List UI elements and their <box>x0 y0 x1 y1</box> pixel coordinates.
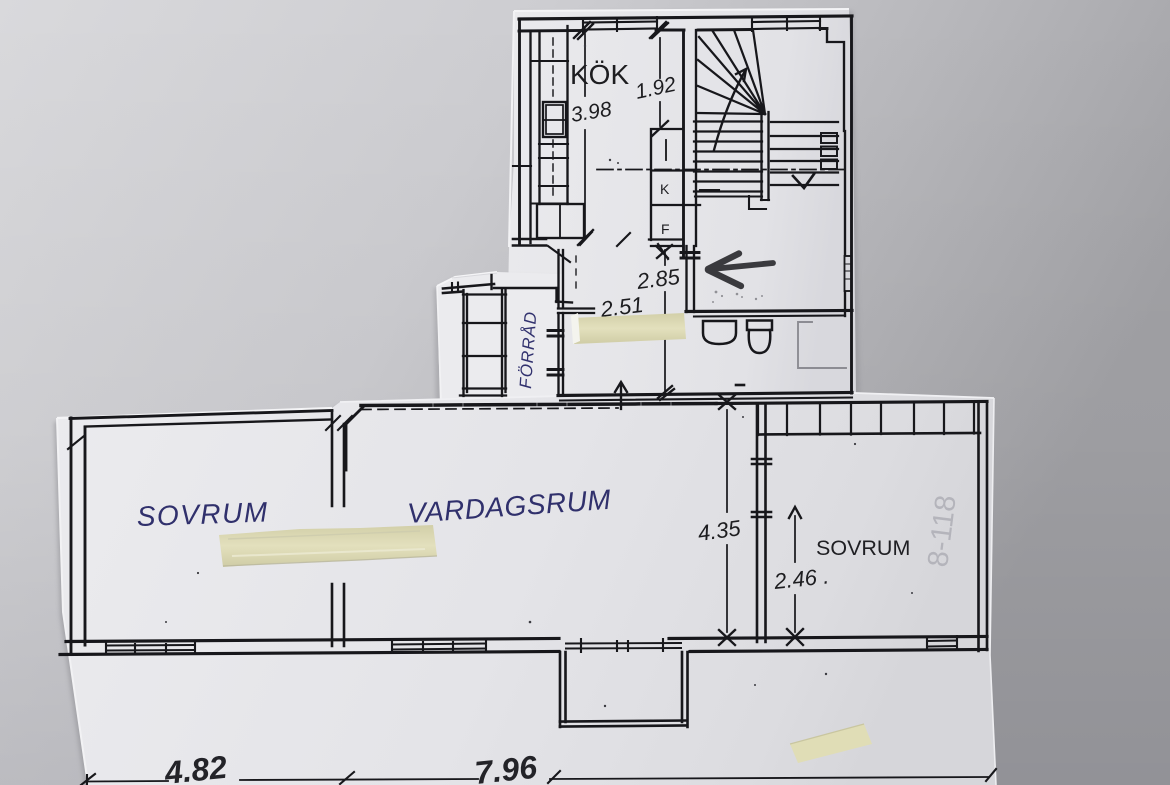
svg-text:F: F <box>661 221 670 237</box>
svg-text:K: K <box>660 181 670 197</box>
svg-text:7.96: 7.96 <box>473 749 539 785</box>
svg-text:SOVRUM: SOVRUM <box>136 496 269 532</box>
svg-text:KÖK: KÖK <box>570 59 629 90</box>
svg-text:4.82: 4.82 <box>162 749 229 785</box>
svg-text:SOVRUM: SOVRUM <box>816 536 910 560</box>
